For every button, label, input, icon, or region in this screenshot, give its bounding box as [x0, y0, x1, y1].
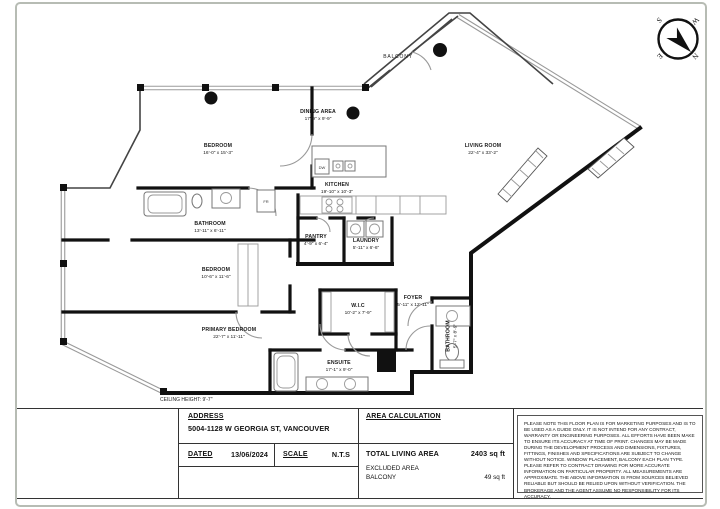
area-calculation-title: AREA CALCULATION [358, 409, 513, 420]
foyer-closet [377, 351, 396, 372]
address-label: ADDRESS [188, 413, 358, 420]
room-dims-primary-bedroom: 22'-7" x 11'-11" [213, 334, 245, 340]
laundry-appliances [347, 221, 383, 237]
room-label-bathroom-2: BATHROOM [446, 320, 452, 351]
bathroom1-fixtures [144, 189, 240, 216]
room-label-wic: W.I.C [351, 303, 365, 309]
interior-walls [63, 88, 471, 393]
disclaimer-text: PLEASE NOTE THIS FLOOR PLAN IS FOR MARKE… [517, 415, 703, 493]
floor-plan-drawing: DW FR [0, 0, 720, 410]
address-value: 5004-1128 W GEORGIA ST, VANCOUVER [188, 424, 358, 433]
area-calculation-cell: AREA CALCULATION TOTAL LIVING AREA 2403 … [358, 409, 513, 498]
balcony-outline [364, 13, 553, 87]
room-labels: BALCONY DINING AREA 17'-9" x 9'-9" LIVIN… [160, 54, 501, 403]
total-living-area-label: TOTAL LIVING AREA [366, 449, 439, 458]
compass-s: S [655, 16, 664, 25]
room-dims-foyer: 5'-11" x 12'-11" [397, 302, 429, 308]
scale-label: SCALE [283, 451, 308, 458]
compass-rose: N E S W [648, 8, 708, 70]
excluded-balcony-label: BALCONY [366, 474, 396, 481]
room-label-laundry: LAUNDRY [353, 238, 380, 244]
scale-value: N.T.S [332, 450, 350, 459]
room-label-bathroom-1: BATHROOM [194, 221, 225, 227]
ceiling-height-note: CEILING HEIGHT: 9'-7" [160, 397, 213, 403]
room-label-dining-area: DINING AREA [300, 109, 336, 115]
dated-cell: DATED 13/06/2024 [178, 443, 274, 466]
kitchen-island: DW [312, 146, 386, 177]
room-label-living-room: LIVING ROOM [465, 143, 502, 149]
room-dims-kitchen: 19'-10" x 10'-3" [321, 189, 353, 195]
room-dims-bedroom-1: 16'-0" x 15'-3" [203, 150, 233, 156]
room-label-kitchen: KITCHEN [325, 182, 349, 188]
excluded-balcony-value: 49 sq ft [484, 474, 505, 481]
room-label-bedroom-2: BEDROOM [202, 267, 230, 273]
dated-label: DATED [188, 451, 213, 458]
fridge-label: FR [263, 199, 268, 204]
hatched-features [498, 138, 634, 202]
ensuite-fixtures [274, 353, 368, 391]
room-dims-laundry: 5'-11" x 6'-6" [353, 245, 380, 251]
dated-scale-row: DATED 13/06/2024 SCALE N.T.S [178, 443, 358, 466]
room-dims-bedroom-2: 10'-6" x 11'-6" [201, 274, 230, 280]
title-block: ADDRESS 5004-1128 W GEORGIA ST, VANCOUVE… [17, 408, 703, 499]
room-label-pantry: PANTRY [305, 234, 327, 240]
room-dims-bathroom-1: 13'-11" x 6'-11" [194, 228, 226, 234]
address-cell: ADDRESS 5004-1128 W GEORGIA ST, VANCOUVE… [178, 409, 358, 443]
bedroom2-closet [238, 244, 258, 306]
room-dims-ensuite: 17'-1" x 9'-0" [326, 367, 353, 373]
room-label-bedroom-1: BEDROOM [204, 143, 232, 149]
title-block-divider-3 [513, 409, 514, 498]
room-dims-wic: 10'-2" x 7'-9" [345, 310, 372, 316]
room-dims-bathroom-2: 5'-7" x 8'-9" [453, 324, 459, 348]
room-dims-living-room: 22'-4" x 33'-2" [468, 150, 498, 156]
dated-value: 13/06/2024 [231, 450, 268, 459]
room-label-balcony: BALCONY [383, 54, 413, 60]
room-label-primary-bedroom: PRIMARY BEDROOM [202, 327, 256, 333]
dishwasher-label: DW [319, 165, 326, 170]
excluded-balcony-row: BALCONY 49 sq ft [366, 474, 505, 481]
room-label-foyer: FOYER [404, 295, 423, 301]
total-living-area-value: 2403 sq ft [471, 449, 505, 458]
room-dims-pantry: 4'-9" x 6'-4" [304, 241, 328, 247]
scale-cell: SCALE N.T.S [274, 443, 358, 466]
total-living-area-row: TOTAL LIVING AREA 2403 sq ft [366, 449, 505, 458]
title-block-hline-2 [178, 466, 358, 467]
floor-plan-page: { "compass": {"n": "N", "e": "E", "s": "… [0, 0, 720, 509]
excluded-area-label: EXCLUDED AREA [366, 465, 419, 472]
room-label-ensuite: ENSUITE [327, 360, 351, 366]
room-dims-dining-area: 17'-9" x 9'-9" [305, 116, 332, 122]
